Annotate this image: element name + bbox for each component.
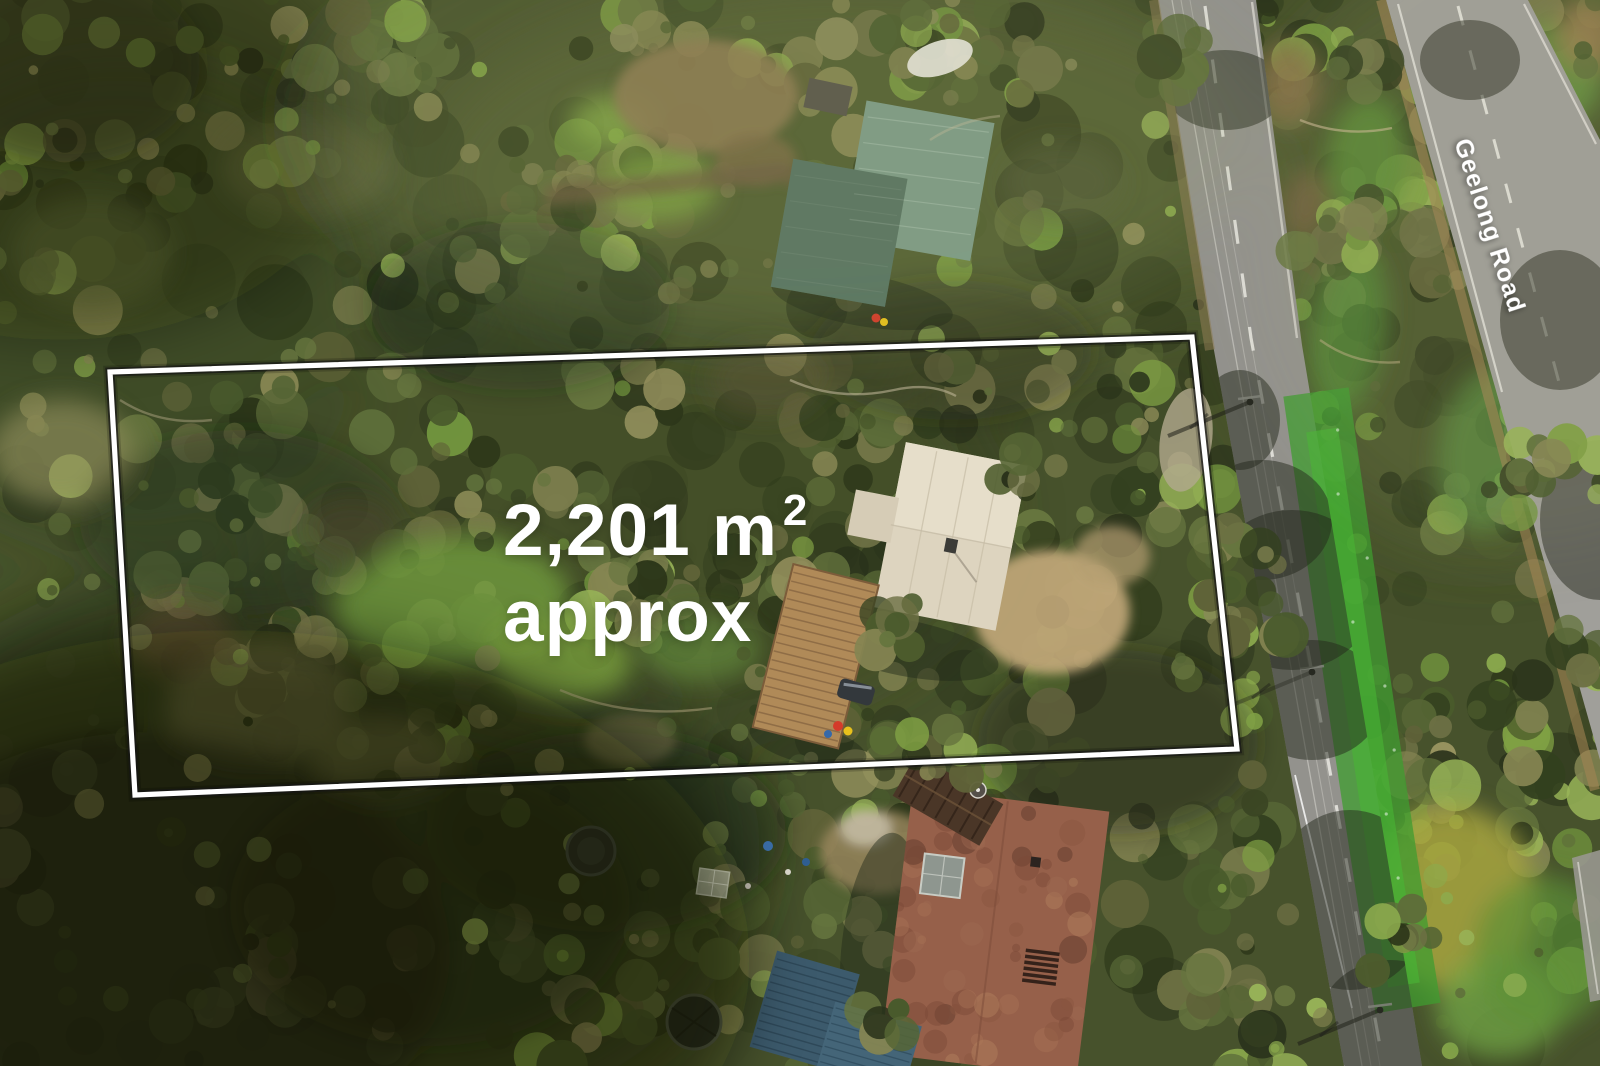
area-value: 2,201 m bbox=[503, 490, 778, 571]
area-approx: approx bbox=[503, 574, 808, 660]
area-value-line: 2,201 m2 bbox=[503, 468, 808, 574]
aerial-property-photo: 2,201 m2 approx Geelong Road bbox=[0, 0, 1600, 1066]
property-area-label: 2,201 m2 approx bbox=[503, 468, 808, 660]
area-exponent: 2 bbox=[783, 486, 808, 535]
